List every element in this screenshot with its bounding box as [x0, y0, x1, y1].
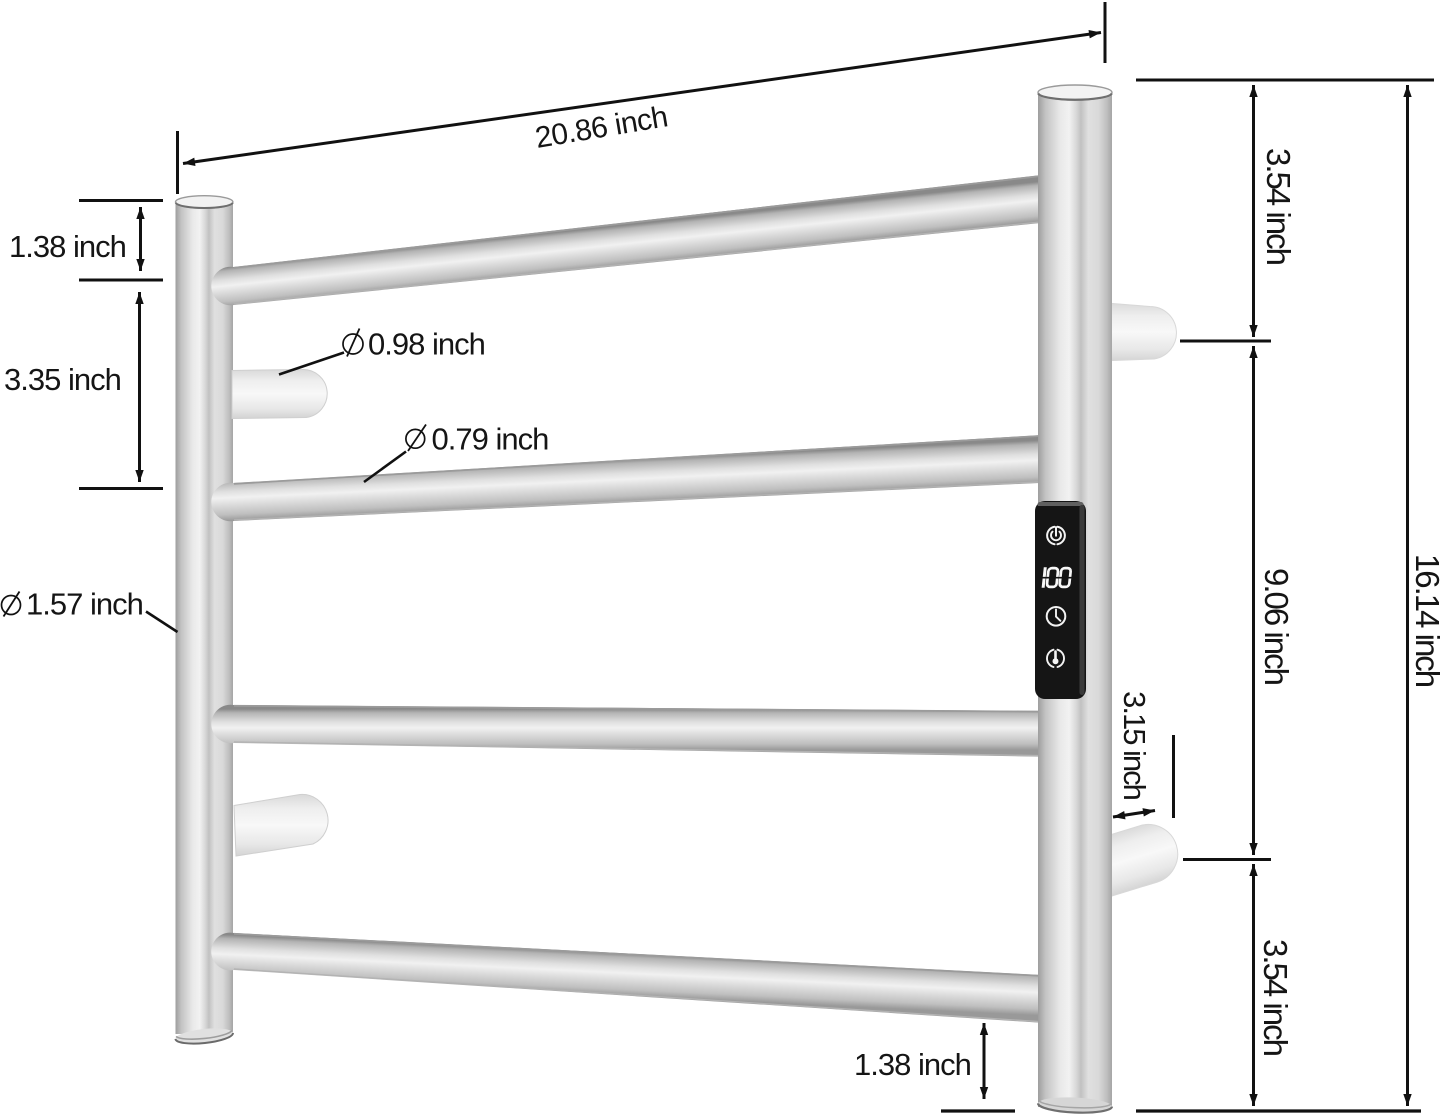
svg-text:3.15 inch: 3.15 inch	[1117, 691, 1152, 800]
svg-text:0.79 inch: 0.79 inch	[432, 422, 549, 457]
svg-text:3.35 inch: 3.35 inch	[4, 362, 121, 397]
svg-text:9.06 inch: 9.06 inch	[1258, 568, 1295, 685]
svg-text:1.38 inch: 1.38 inch	[9, 229, 126, 264]
svg-text:1.38 inch: 1.38 inch	[854, 1047, 971, 1082]
svg-text:3.54 inch: 3.54 inch	[1257, 939, 1294, 1056]
svg-text:0.98 inch: 0.98 inch	[368, 327, 485, 362]
svg-text:1.57 inch: 1.57 inch	[26, 587, 143, 622]
svg-text:3.54 inch: 3.54 inch	[1260, 148, 1297, 265]
svg-text:16.14 inch: 16.14 inch	[1409, 554, 1445, 687]
